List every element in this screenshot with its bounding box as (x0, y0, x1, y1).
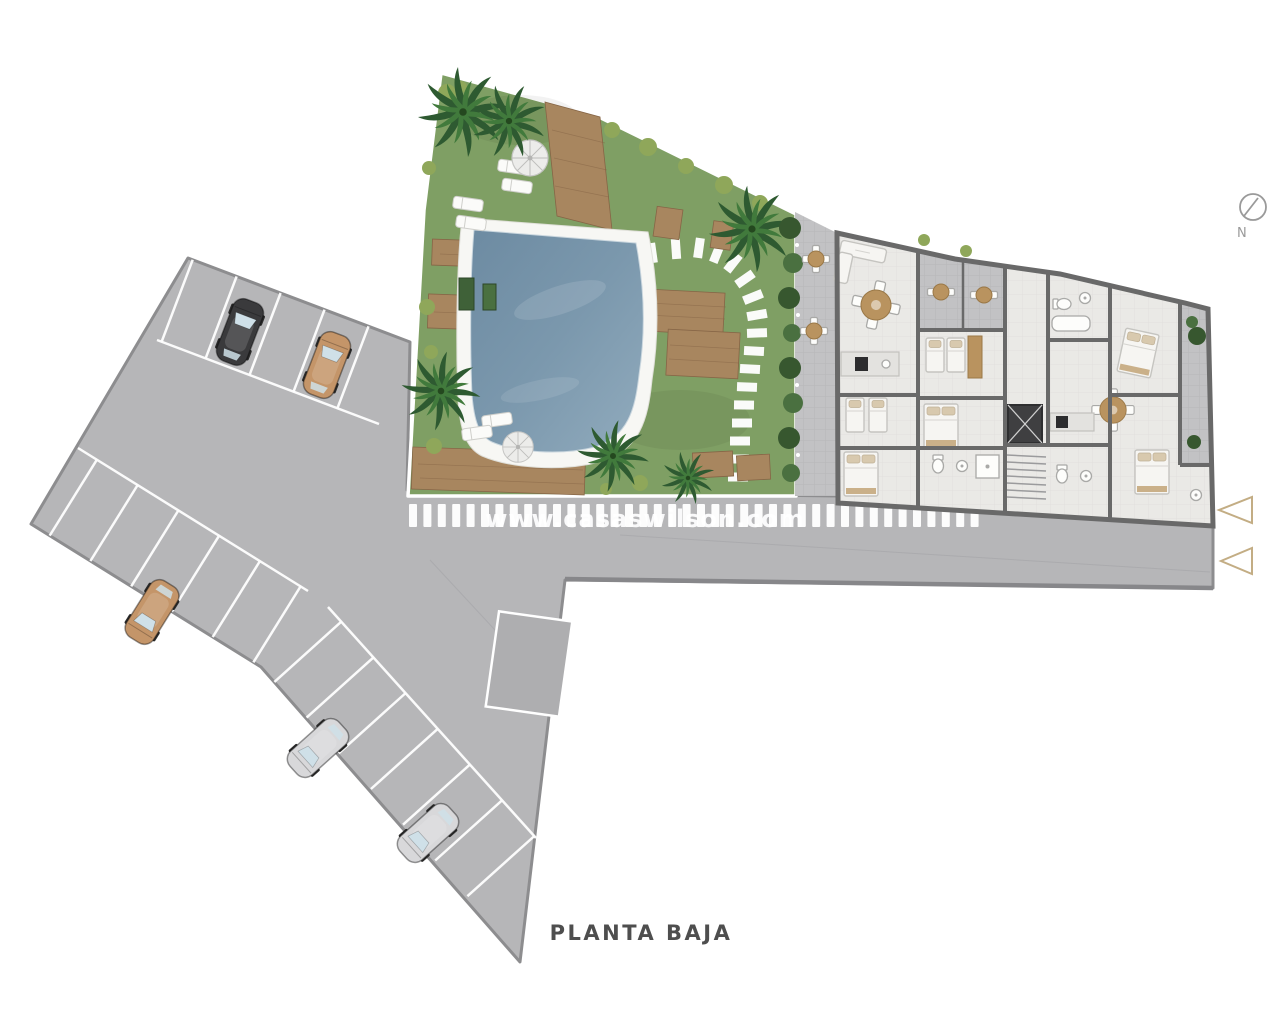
crosswalk-bar (855, 504, 863, 527)
crosswalk-bar (827, 504, 835, 527)
elevator-icon (1008, 405, 1042, 443)
crosswalk-bar (467, 504, 475, 527)
terrace-plant (918, 234, 930, 246)
bed (844, 452, 878, 496)
parking-marked-zone (486, 611, 573, 716)
planter-box (483, 284, 496, 310)
parasol-icon (503, 432, 534, 463)
bed (846, 398, 864, 432)
watermark-text: www.casaswilson.com (485, 505, 805, 533)
bed (869, 398, 887, 432)
north-indicator: N (1237, 194, 1266, 241)
bed (1135, 450, 1169, 494)
bed (924, 404, 958, 448)
entrance-arrow-icon (1219, 497, 1252, 523)
planter-box (459, 278, 474, 310)
garden (387, 67, 813, 509)
kitchen-counter (841, 352, 899, 376)
crosswalk-bar (438, 504, 446, 527)
wardrobe (968, 336, 982, 378)
crosswalk-bar (812, 504, 820, 527)
plan-title: PLANTA BAJA (550, 921, 733, 945)
crosswalk-bar (423, 504, 431, 527)
crosswalk-bar (452, 504, 460, 527)
north-label: N (1237, 226, 1247, 241)
crosswalk-bar (409, 504, 417, 527)
sink-icon (1191, 490, 1202, 501)
crosswalk-bar (841, 504, 849, 527)
parasol-icon (512, 140, 548, 176)
bathtub-icon (1052, 316, 1090, 331)
terrace-plant (960, 245, 972, 257)
apartment-building (833, 233, 1213, 526)
terrace-plant (1186, 316, 1198, 328)
entrance-arrows (1219, 497, 1252, 574)
bed (926, 338, 944, 372)
bed (947, 338, 965, 372)
entrance-arrow-icon (1221, 548, 1252, 574)
terrace-plant (1188, 327, 1206, 345)
kitchen-counter (1050, 413, 1094, 431)
floor-plan: www.casaswilson.com (0, 0, 1280, 1024)
terrace-plant (1187, 435, 1201, 449)
